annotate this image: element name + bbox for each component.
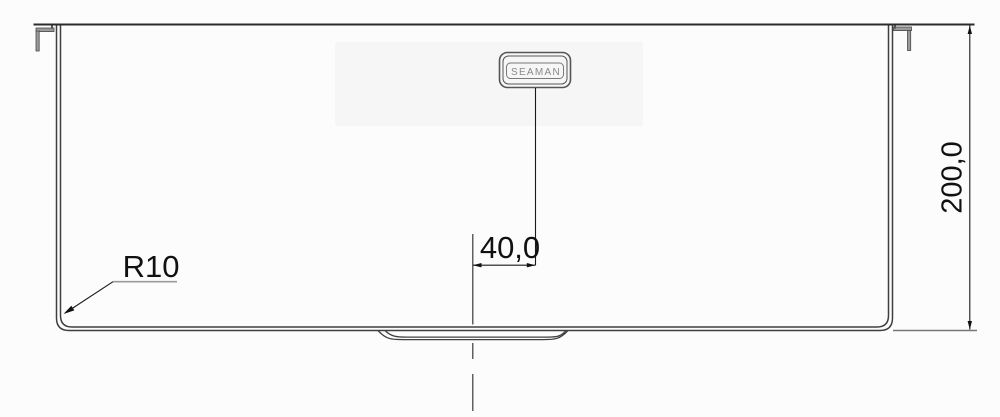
mounting-clip-right bbox=[894, 26, 912, 51]
clip-tick bbox=[894, 26, 896, 29]
mounting-clip-left bbox=[36, 26, 54, 52]
clip-tick bbox=[51, 26, 53, 29]
drain-recess-inner bbox=[385, 331, 566, 338]
offset-dimension-label: 40,0 bbox=[480, 230, 540, 265]
radius-callout-label: R10 bbox=[123, 249, 180, 284]
height-dimension-label: 200,0 bbox=[937, 141, 969, 214]
leader-arrowhead-icon bbox=[64, 306, 75, 314]
drain-recess bbox=[378, 331, 568, 340]
brand-label: SEAMAN bbox=[511, 67, 561, 78]
drain-recess-outer bbox=[378, 331, 568, 340]
clip-leg bbox=[908, 31, 911, 51]
drawing-canvas: SEAMAN 40,0 200,0 bbox=[0, 0, 1000, 417]
radius-callout: R10 bbox=[64, 249, 180, 314]
sink-technical-drawing: SEAMAN 40,0 200,0 bbox=[0, 0, 1000, 417]
watermark-band bbox=[335, 42, 643, 126]
clip-bar bbox=[894, 27, 912, 31]
clip-leg bbox=[36, 31, 39, 51]
leader-line bbox=[66, 282, 113, 313]
dimension-height-200: 200,0 bbox=[893, 26, 977, 331]
arrowhead-up-icon bbox=[968, 26, 972, 35]
arrowhead-down-icon bbox=[968, 321, 972, 330]
